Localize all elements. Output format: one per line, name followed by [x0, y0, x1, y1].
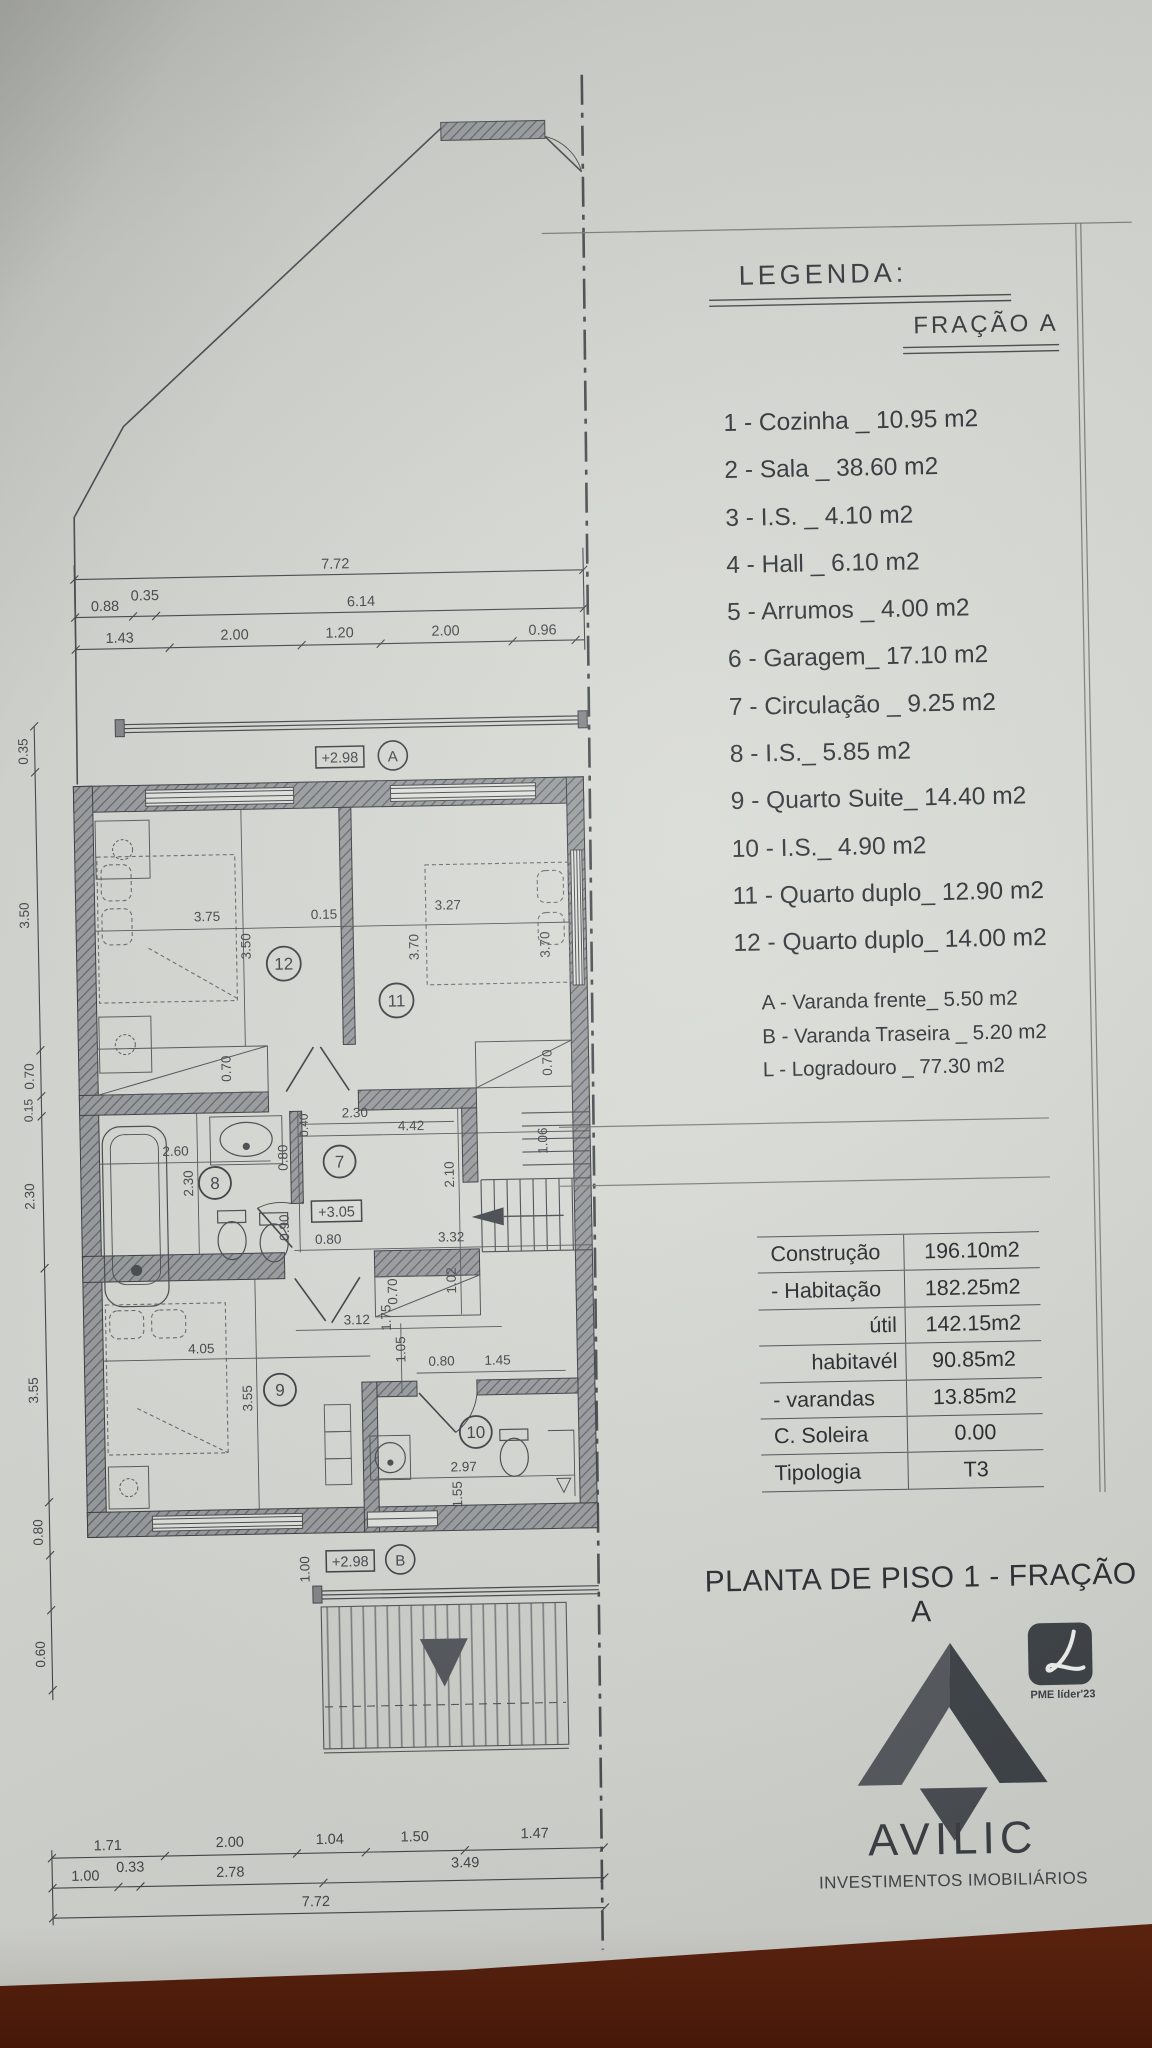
photographed-floor-plan-sheet: 7.72 0.88 0.35 6.14 1.43 2.00 1.20 2.00 … [0, 0, 1152, 2048]
paper-shading [0, 0, 1152, 2048]
